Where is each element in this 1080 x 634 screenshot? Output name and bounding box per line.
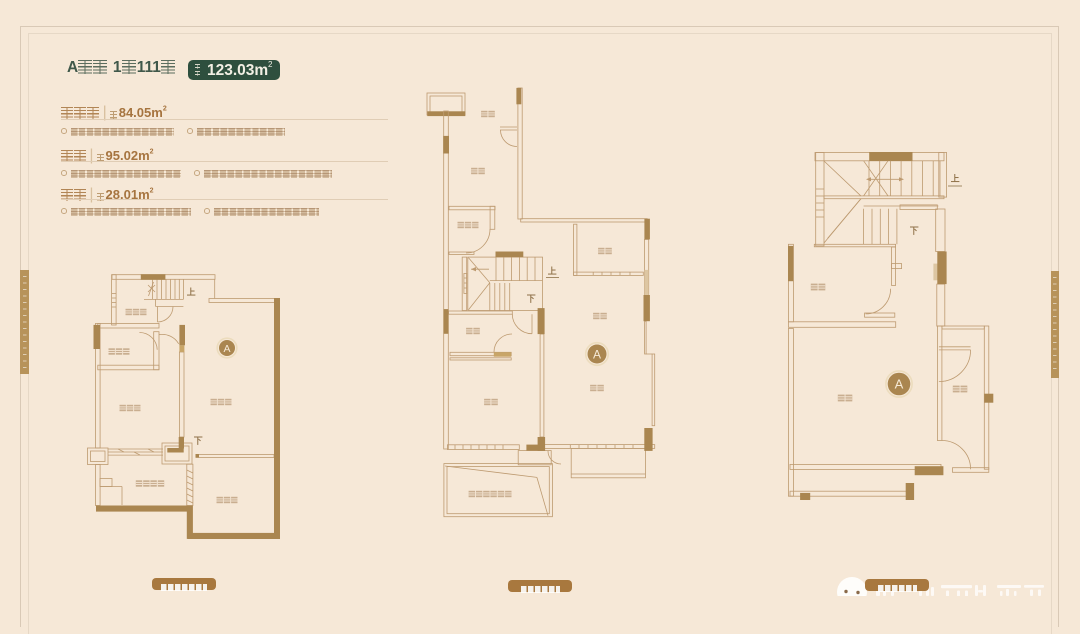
svg-text:A: A	[593, 347, 601, 361]
svg-text:A: A	[223, 343, 230, 355]
svg-text:A: A	[895, 377, 904, 392]
